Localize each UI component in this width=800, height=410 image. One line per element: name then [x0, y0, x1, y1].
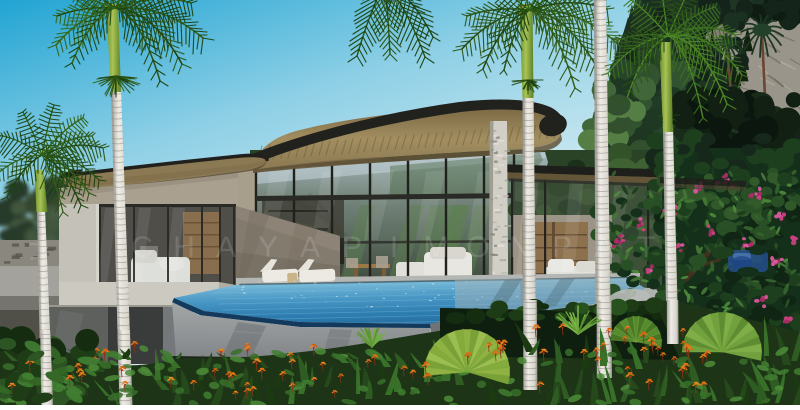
svg-text:C: C: [131, 231, 153, 264]
svg-text:N: N: [509, 231, 531, 264]
svg-text:I: I: [390, 231, 398, 264]
svg-text:A: A: [216, 231, 236, 264]
svg-text:A: A: [594, 231, 614, 264]
svg-text:A: A: [300, 231, 320, 264]
svg-text:T: T: [637, 231, 655, 264]
svg-text:Y: Y: [258, 231, 278, 264]
svg-text:H: H: [173, 231, 195, 264]
svg-text:O: O: [466, 231, 489, 264]
svg-text:M: M: [424, 231, 449, 264]
svg-text:P: P: [552, 231, 572, 264]
svg-text:P: P: [342, 231, 362, 264]
